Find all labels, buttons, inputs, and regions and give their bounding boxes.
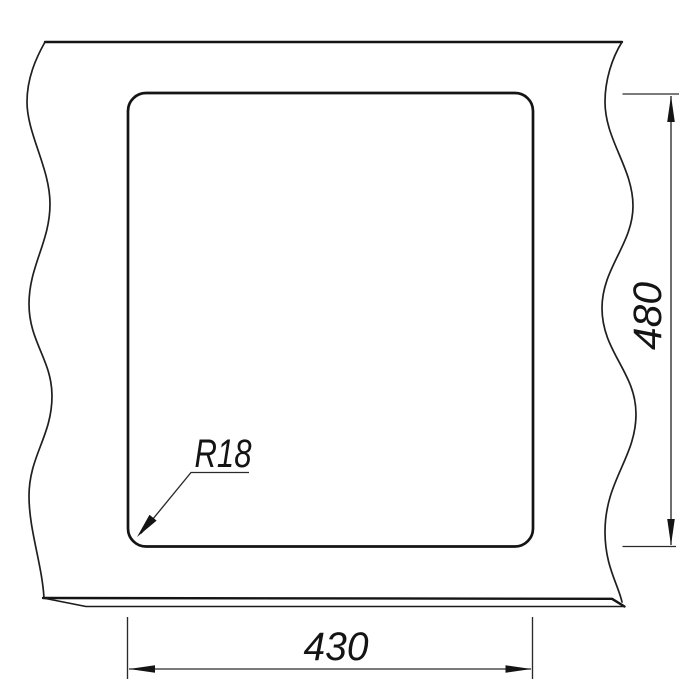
- height-arrow-down-icon: [667, 519, 675, 545]
- radius-leader-line: [141, 473, 249, 534]
- break-line-left: [27, 42, 52, 598]
- height-arrow-up-icon: [667, 96, 675, 122]
- panel-bottom-edge-top: [43, 598, 625, 607]
- width-arrow-left-icon: [129, 665, 155, 673]
- cutout-outline: [128, 93, 533, 547]
- width-arrow-right-icon: [506, 665, 532, 673]
- height-dimension-label: 480: [626, 282, 670, 350]
- technical-drawing: R18 480 430: [0, 0, 700, 700]
- width-dimension-label: 430: [304, 625, 369, 669]
- corner-radius-label: R18: [195, 432, 253, 476]
- drawing-canvas: R18 480 430: [0, 0, 700, 700]
